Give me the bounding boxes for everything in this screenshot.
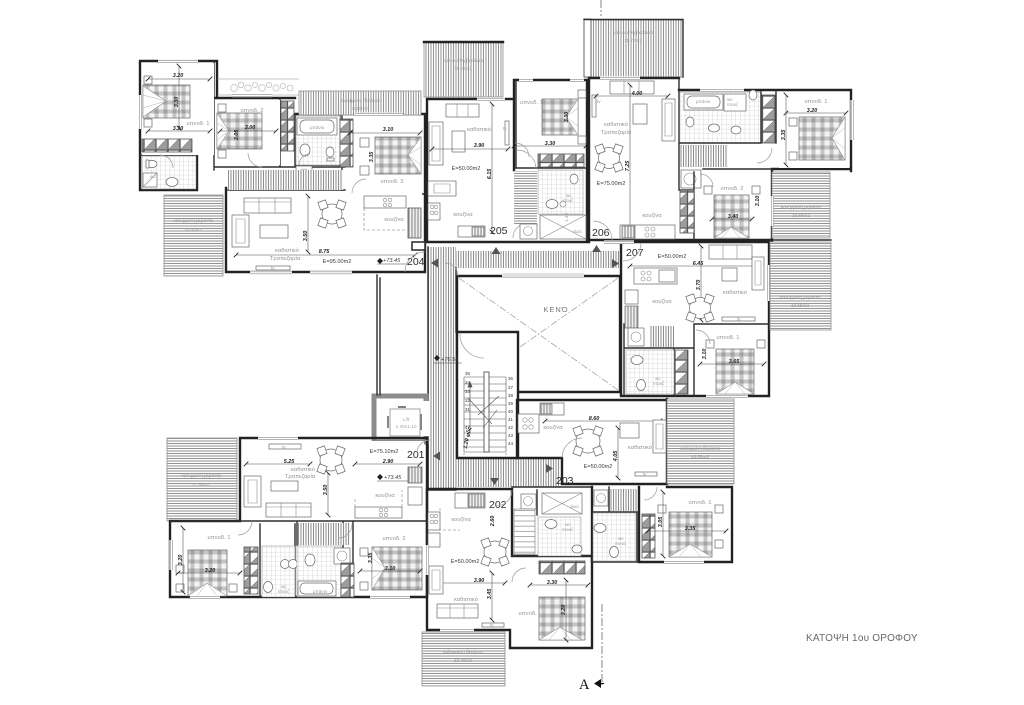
svg-text:39: 39 (508, 401, 513, 406)
svg-text:8.30m2: 8.30m2 (352, 106, 368, 111)
svg-text:ΚΑΤΟΨΗ 1ου ΟΡΟΦΟΥ: ΚΑΤΟΨΗ 1ου ΟΡΟΦΟΥ (806, 633, 918, 644)
svg-text:3.20: 3.20 (178, 555, 184, 566)
svg-text:3.45: 3.45 (487, 588, 493, 599)
svg-text:3.20: 3.20 (561, 605, 567, 616)
svg-text:11.05m2: 11.05m2 (454, 66, 472, 71)
svg-text:καλυμμένη βεράντα: καλυμμένη βεράντα (443, 57, 483, 63)
svg-text:καλυμμένη βεράντα: καλυμμένη βεράντα (340, 97, 380, 103)
svg-text:E=50.00m2: E=50.00m2 (451, 559, 480, 565)
svg-text:5.25: 5.25 (284, 459, 295, 465)
svg-text:3.35: 3.35 (369, 151, 375, 162)
svg-text:31: 31 (465, 407, 470, 412)
svg-text:6.15: 6.15 (487, 168, 493, 179)
svg-text:duct: duct (570, 504, 579, 509)
svg-text:3.35: 3.35 (781, 129, 787, 140)
svg-text:4.00: 4.00 (631, 91, 643, 97)
svg-text:3.20: 3.20 (205, 568, 216, 574)
svg-text:κουζίνα: κουζίνα (453, 212, 473, 218)
svg-text:3.10: 3.10 (702, 349, 708, 360)
svg-text:E=50.00m2: E=50.00m2 (452, 166, 481, 172)
svg-text:3.30: 3.30 (174, 97, 180, 108)
svg-text:υπνοδ. 1: υπνοδ. 1 (187, 121, 210, 127)
svg-text:4.05: 4.05 (613, 450, 619, 462)
svg-text:καθιστικό: καθιστικό (723, 289, 747, 296)
svg-text:κουζίνα: κουζίνα (642, 213, 662, 219)
svg-text:υπνοδ. 2: υπνοδ. 2 (241, 108, 264, 114)
svg-text:3.35: 3.35 (368, 552, 374, 563)
svg-text:38: 38 (508, 393, 513, 398)
svg-text:καλυμμένη βεράντα: καλυμμένη βεράντα (680, 445, 720, 451)
svg-text:204: 204 (407, 256, 425, 268)
svg-text:κουζίνα: κουζίνα (543, 425, 563, 431)
svg-text:3.70: 3.70 (696, 280, 702, 291)
svg-text:42: 42 (508, 425, 513, 430)
svg-text:E=50.00m2: E=50.00m2 (658, 254, 687, 260)
svg-text:6.45: 6.45 (693, 261, 704, 267)
svg-text:3.30: 3.30 (547, 580, 558, 586)
svg-text:33: 33 (465, 389, 470, 394)
svg-text:202: 202 (489, 499, 507, 511)
svg-text:καλυμμένη βεράντα: καλυμμένη βεράντα (781, 204, 821, 210)
svg-text:καθιστικό: καθιστικό (604, 121, 628, 128)
svg-text:καλυμμένη βεράντα: καλυμμένη βεράντα (443, 648, 483, 654)
svg-text:A: A (579, 677, 590, 693)
svg-text:35: 35 (465, 371, 470, 376)
svg-text:E=75.10m2: E=75.10m2 (370, 449, 399, 455)
svg-text:43: 43 (508, 433, 513, 438)
svg-text:203: 203 (556, 475, 574, 487)
svg-text:3.65: 3.65 (729, 359, 740, 365)
svg-text:3.50: 3.50 (323, 485, 329, 496)
svg-text:3.90: 3.90 (474, 578, 485, 584)
svg-text:υπνοδ. 1: υπνοδ. 1 (519, 611, 542, 617)
svg-text:7.25: 7.25 (625, 160, 631, 171)
svg-text:Lift: Lift (403, 417, 410, 423)
svg-text:μπάνιο: μπάνιο (696, 98, 711, 104)
svg-text:E=50.00m2: E=50.00m2 (584, 464, 613, 470)
svg-text:+76.58: +76.58 (441, 357, 459, 363)
svg-text:duct: duct (573, 229, 582, 234)
svg-text:36: 36 (508, 376, 513, 381)
svg-text:3.40: 3.40 (728, 214, 739, 220)
svg-text:3.00: 3.00 (245, 125, 256, 131)
svg-text:+73.45: +73.45 (383, 258, 401, 264)
svg-text:καλυμμένη βεράντα: καλυμμένη βεράντα (780, 294, 820, 300)
svg-text:υπνοδ. 1: υπνοδ. 1 (805, 99, 828, 105)
svg-text:44: 44 (508, 441, 513, 446)
svg-text:3.20: 3.20 (173, 126, 184, 132)
svg-text:κουζίνα: κουζίνα (384, 217, 404, 223)
svg-text:1.40x1.10: 1.40x1.10 (395, 424, 416, 430)
svg-text:3.10: 3.10 (383, 127, 394, 133)
svg-text:37: 37 (508, 385, 513, 390)
svg-text:+73.45: +73.45 (384, 475, 402, 481)
svg-text:καθιστικό: καθιστικό (467, 126, 491, 133)
svg-text:καλυμμένη βεράντα: καλυμμένη βεράντα (173, 217, 213, 223)
svg-text:κουζίνα: κουζίνα (652, 299, 672, 305)
svg-text:201: 201 (407, 449, 425, 461)
svg-text:8.60: 8.60 (589, 416, 600, 422)
svg-text:10.50m2: 10.50m2 (184, 227, 202, 232)
svg-text:1.40: 1.40 (564, 213, 569, 222)
svg-text:Τραπεζαρία: Τραπεζαρία (285, 474, 316, 480)
svg-text:υπνοδ. 1: υπνοδ. 1 (689, 500, 712, 506)
svg-text:11.80m2: 11.80m2 (192, 482, 210, 487)
svg-text:40: 40 (508, 409, 513, 414)
svg-text:3.10: 3.10 (755, 196, 761, 207)
svg-text:υπνοδ. 1: υπνοδ. 1 (208, 535, 231, 541)
svg-text:32: 32 (465, 398, 470, 403)
svg-text:3.35: 3.35 (685, 526, 696, 532)
svg-text:κουζίνα: κουζίνα (375, 493, 395, 499)
svg-text:υπνοδ. 2: υπνοδ. 2 (383, 536, 406, 542)
svg-text:κουζίνα: κουζίνα (451, 517, 471, 523)
svg-text:10.65m2: 10.65m2 (791, 303, 809, 308)
svg-text:καθιστικό: καθιστικό (275, 247, 299, 254)
svg-text:μπάνιο: μπάνιο (313, 588, 328, 594)
svg-text:3.50: 3.50 (303, 231, 309, 242)
svg-text:wc: wc (150, 174, 156, 179)
svg-text:206: 206 (592, 227, 610, 239)
svg-text:3.20: 3.20 (173, 73, 184, 79)
svg-text:8.75: 8.75 (319, 249, 330, 255)
svg-text:10.55m2: 10.55m2 (691, 454, 709, 459)
svg-text:3.90: 3.90 (474, 143, 485, 149)
svg-text:ΚΕΝΌ: ΚΕΝΌ (543, 305, 568, 314)
svg-text:μπάνιο: μπάνιο (310, 124, 325, 130)
svg-text:11.70m2: 11.70m2 (624, 38, 642, 43)
svg-text:10.40m2: 10.40m2 (454, 658, 472, 663)
svg-text:καθιστικό: καθιστικό (454, 596, 478, 603)
svg-text:3.05: 3.05 (234, 129, 240, 140)
svg-text:E=95.00m2: E=95.00m2 (323, 259, 352, 265)
svg-text:υπνοδ. 2: υπνοδ. 2 (721, 186, 744, 192)
svg-text:υπνοδ. 1: υπνοδ. 1 (717, 335, 740, 341)
svg-text:Τραπεζαρία: Τραπεζαρία (601, 130, 632, 136)
svg-text:3.30: 3.30 (564, 112, 570, 123)
svg-text:υπνοδ. 1: υπνοδ. 1 (520, 100, 543, 106)
svg-text:καλυμμένη βεράντα: καλυμμένη βεράντα (613, 29, 653, 35)
svg-text:καλυμμένη βεράντα: καλυμμένη βεράντα (181, 472, 221, 478)
svg-text:10.65m2: 10.65m2 (792, 213, 810, 218)
svg-text:205: 205 (490, 225, 508, 237)
svg-text:καθιστικό: καθιστικό (628, 444, 652, 451)
svg-text:3.05: 3.05 (658, 516, 664, 527)
svg-text:2.90: 2.90 (382, 459, 394, 465)
svg-text:Τραπεζαρία: Τραπεζαρία (270, 256, 301, 262)
svg-text:3.10: 3.10 (385, 566, 396, 572)
svg-text:3.20: 3.20 (807, 108, 818, 114)
svg-text:2.60: 2.60 (490, 516, 496, 528)
svg-text:3.30: 3.30 (545, 141, 556, 147)
svg-text:41: 41 (508, 417, 513, 422)
svg-text:καθιστικό: καθιστικό (291, 466, 315, 473)
svg-text:υπνοδ. 3: υπνοδ. 3 (381, 179, 404, 185)
svg-text:E=75.00m2: E=75.00m2 (597, 181, 626, 187)
svg-text:207: 207 (626, 247, 644, 259)
